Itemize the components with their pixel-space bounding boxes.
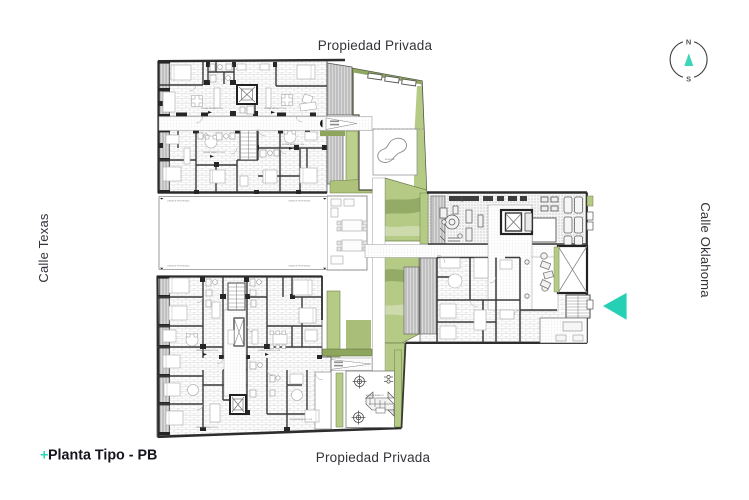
svg-text:Planta Tipo - PB: Planta Tipo - PB [48,448,157,464]
svg-text:Propiedad Privada: Propiedad Privada [316,450,431,465]
svg-text:Calle Texas: Calle Texas [36,213,51,282]
svg-text:Calle Oklahoma: Calle Oklahoma [698,202,713,298]
svg-text:AREA DE ASADOR: AREA DE ASADOR [366,394,384,397]
svg-text:N: N [686,38,691,47]
svg-text:Propiedad Privada: Propiedad Privada [318,38,433,53]
svg-text:S: S [686,75,691,84]
